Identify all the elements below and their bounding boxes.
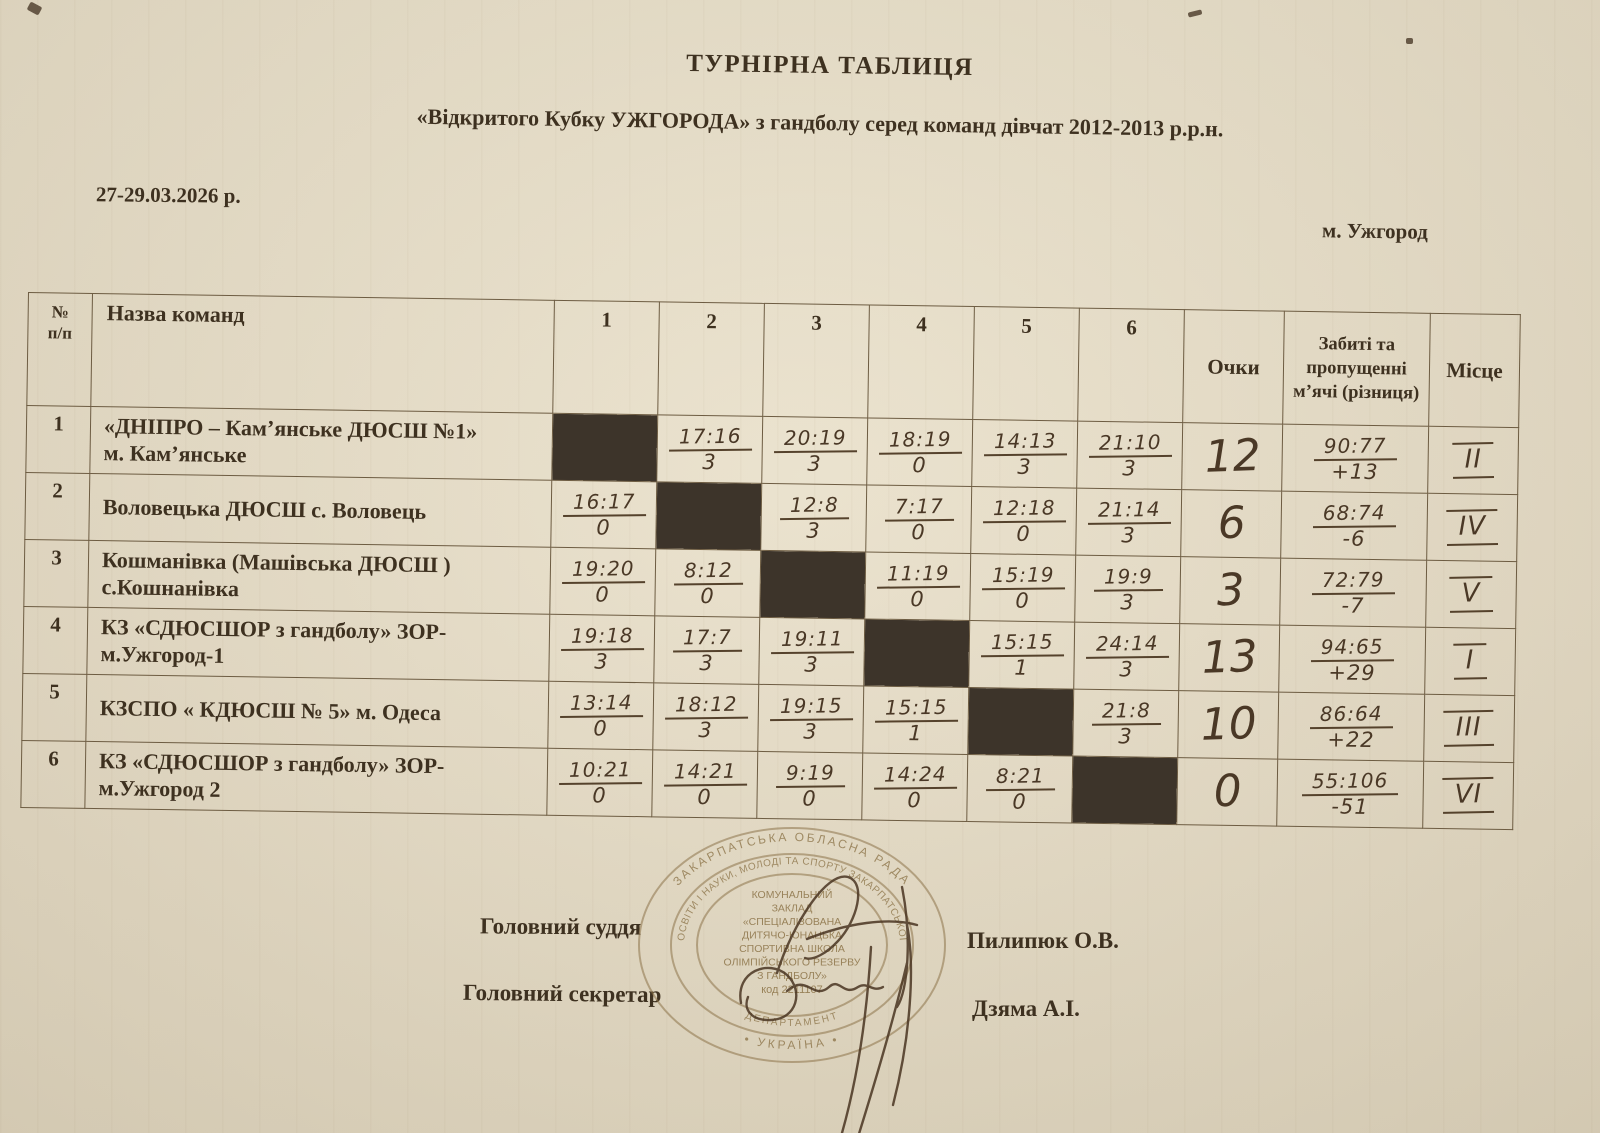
goal-difference: +22 xyxy=(1278,728,1423,753)
match-result-cell: 10:210 xyxy=(547,748,653,817)
team-name-cell: Кошманівка (Машівська ДЮСШ )с.Кошнанівка xyxy=(88,540,551,614)
points-value: 10 xyxy=(1199,703,1257,747)
team-name-cell: КЗ «СДЮСШОР з гандболу» ЗОР-м.Ужгород 2 xyxy=(85,741,548,815)
points-cell: 3 xyxy=(1180,557,1281,625)
match-result-cell: 18:123 xyxy=(653,683,759,752)
match-score: 15:15 xyxy=(980,629,1063,657)
match-points: 0 xyxy=(547,784,651,809)
row-number-cell: 6 xyxy=(21,740,86,808)
match-result-cell: 21:83 xyxy=(1073,689,1179,758)
goals-cell: 55:106-51 xyxy=(1277,759,1424,828)
header-round-6: 6 xyxy=(1078,308,1185,423)
goal-difference: -51 xyxy=(1277,795,1422,820)
row-number-cell: 2 xyxy=(25,472,90,540)
match-result-cell: 18:190 xyxy=(867,418,973,487)
diagonal-blackout-cell xyxy=(656,482,762,551)
match-points: 3 xyxy=(549,650,653,675)
points-cell: 13 xyxy=(1179,624,1280,692)
points-value: 12 xyxy=(1203,435,1261,479)
match-result-cell: 19:183 xyxy=(549,614,655,683)
match-result-cell: 19:93 xyxy=(1075,555,1181,624)
match-result-cell: 20:193 xyxy=(762,416,868,485)
points-value: 3 xyxy=(1215,569,1245,612)
goals-scored-conceded: 86:64 xyxy=(1310,701,1393,729)
match-result-cell: 13:140 xyxy=(548,681,654,750)
match-score: 15:15 xyxy=(874,695,957,723)
match-result-cell: 15:151 xyxy=(969,621,1075,690)
header-points: Очки xyxy=(1183,310,1285,424)
event-dates: 27-29.03.2026 р. xyxy=(96,182,241,209)
page-title: ТУРНІРНА ТАБЛИЦЯ xyxy=(60,41,1600,90)
match-points: 0 xyxy=(967,790,1071,815)
match-score: 12:8 xyxy=(779,492,848,520)
match-points: 1 xyxy=(863,721,967,746)
match-result-cell: 19:200 xyxy=(550,547,656,616)
match-result-cell: 17:163 xyxy=(657,415,763,484)
points-value: 6 xyxy=(1216,502,1246,545)
match-score: 20:19 xyxy=(773,425,856,453)
diagonal-blackout-cell xyxy=(760,550,866,619)
stamp-ring-text-inner-top: ОСВІТИ І НАУКИ, МОЛОДІ ТА СПОРТУ ЗАКАРПА… xyxy=(676,856,909,942)
place-cell: V xyxy=(1426,560,1517,628)
judge-signature xyxy=(777,877,917,1105)
place-value: III xyxy=(1444,710,1495,747)
goals-cell: 86:64+22 xyxy=(1278,692,1425,761)
match-points: 3 xyxy=(657,450,761,475)
stamp-ring-text-top: ЗАКАРПАТСЬКА ОБЛАСНА РАДА xyxy=(670,830,914,888)
scanned-document-page: ТУРНІРНА ТАБЛИЦЯ «Відкритого Кубку УЖГОР… xyxy=(0,0,1600,1133)
match-result-cell: 24:143 xyxy=(1074,622,1180,691)
header-round-4: 4 xyxy=(868,305,975,420)
header-place: Місце xyxy=(1429,313,1521,427)
goals-cell: 90:77+13 xyxy=(1282,424,1429,493)
goals-cell: 72:79-7 xyxy=(1280,558,1427,627)
team-name-line-2: м.Ужгород 2 xyxy=(98,775,546,808)
header-number: № п/п xyxy=(27,293,93,407)
goals-scored-conceded: 94:65 xyxy=(1311,634,1394,662)
match-points: 0 xyxy=(655,584,759,609)
match-result-cell: 16:170 xyxy=(551,480,657,549)
goal-difference: +29 xyxy=(1279,661,1424,686)
match-score: 21:10 xyxy=(1088,430,1171,458)
place-value: I xyxy=(1453,643,1486,680)
team-name-line-2: с.Кошнанівка xyxy=(101,574,549,607)
goals-scored-conceded: 55:106 xyxy=(1302,768,1399,796)
match-points: 3 xyxy=(653,718,757,743)
tournament-table: № п/п Назва команд 1 2 3 4 5 6 Очки Заби… xyxy=(20,292,1520,830)
match-points: 0 xyxy=(652,785,756,810)
match-result-cell: 8:120 xyxy=(655,549,761,618)
match-result-cell: 9:190 xyxy=(757,751,863,820)
svg-text:• УКРАЇНА •: • УКРАЇНА • xyxy=(743,1032,841,1052)
stamp-line: «СПЕЦІАЛІЗОВАНА xyxy=(743,916,841,928)
diagonal-blackout-cell xyxy=(968,687,1074,756)
stamp-line: ОЛІМПІЙСЬКОГО РЕЗЕРВУ xyxy=(724,956,861,969)
match-points: 0 xyxy=(551,516,655,541)
match-score: 19:9 xyxy=(1093,564,1162,592)
match-result-cell: 7:170 xyxy=(866,485,972,554)
svg-text:ЗАКАРПАТСЬКА ОБЛАСНА РАДА: ЗАКАРПАТСЬКА ОБЛАСНА РАДА xyxy=(670,830,914,888)
stamp-line: ДИТЯЧО-ЮНАЦЬКА xyxy=(742,930,842,942)
stamp-ring-text-inner-bottom: ДЕПАРТАМЕНТ xyxy=(744,1010,840,1029)
match-score: 15:19 xyxy=(981,562,1064,590)
match-points: 3 xyxy=(972,455,1076,480)
points-cell: 6 xyxy=(1181,490,1282,558)
place-cell: II xyxy=(1428,426,1519,494)
stamp-rings xyxy=(639,828,945,1062)
match-points: 0 xyxy=(548,717,652,742)
points-cell: 12 xyxy=(1182,423,1283,491)
points-value: 13 xyxy=(1200,636,1258,680)
match-score: 14:24 xyxy=(873,762,956,790)
secretary-name: Дзяма А.І. xyxy=(972,996,1080,1022)
match-points: 3 xyxy=(654,651,758,676)
place-value: VI xyxy=(1442,777,1494,814)
match-score: 17:7 xyxy=(672,625,741,653)
match-points: 0 xyxy=(970,589,1074,614)
points-cell: 10 xyxy=(1178,691,1279,759)
match-result-cell: 8:210 xyxy=(967,754,1073,823)
header-round-5: 5 xyxy=(973,307,1080,422)
page-subtitle: «Відкритого Кубку УЖГОРОДА» з гандболу с… xyxy=(40,98,1600,149)
diagonal-blackout-cell xyxy=(1072,756,1178,825)
match-points: 3 xyxy=(761,519,865,544)
event-city: м. Ужгород xyxy=(1322,218,1428,244)
match-score: 21:14 xyxy=(1087,497,1170,525)
place-cell: VI xyxy=(1423,761,1514,829)
secretary-signature xyxy=(740,947,907,1133)
tournament-table-wrapper: № п/п Назва команд 1 2 3 4 5 6 Очки Заби… xyxy=(20,292,1520,830)
points-cell: 0 xyxy=(1177,758,1278,826)
team-name-line-2: м. Кам’янське xyxy=(103,440,551,473)
goals-scored-conceded: 72:79 xyxy=(1312,567,1395,595)
match-score: 14:13 xyxy=(983,428,1066,456)
match-score: 7:17 xyxy=(884,494,953,522)
diagonal-blackout-cell xyxy=(552,413,658,482)
match-score: 9:19 xyxy=(775,760,844,788)
stamp-ring-text-bottom: • УКРАЇНА • xyxy=(743,1032,841,1052)
stamp-line: КОМУНАЛЬНИЙ xyxy=(752,888,833,901)
match-points: 3 xyxy=(759,653,863,678)
place-value: IV xyxy=(1446,509,1498,546)
match-result-cell: 17:73 xyxy=(654,616,760,685)
match-points: 0 xyxy=(550,583,654,608)
paper-speck xyxy=(27,1,43,15)
goal-difference: +13 xyxy=(1282,460,1427,485)
match-result-cell: 19:113 xyxy=(759,617,865,686)
judge-name: Пилипюк О.В. xyxy=(967,928,1119,954)
stamp-line: ЗАКЛАД xyxy=(772,903,813,915)
match-score: 17:16 xyxy=(668,424,751,452)
paper-speck xyxy=(1188,9,1203,17)
match-score: 19:15 xyxy=(769,693,852,721)
row-number-cell: 5 xyxy=(22,673,87,741)
match-points: 3 xyxy=(1075,591,1179,616)
match-points: 0 xyxy=(866,520,970,545)
place-cell: III xyxy=(1424,694,1515,762)
team-name-cell: КЗ «СДЮСШОР з гандболу» ЗОР-м.Ужгород-1 xyxy=(87,607,550,681)
team-name-line-1: Воловецька ДЮСШ с. Воловець xyxy=(103,494,551,527)
header-team-name: Назва команд xyxy=(91,293,555,413)
place-cell: IV xyxy=(1427,493,1518,561)
match-points: 3 xyxy=(1077,457,1181,482)
match-result-cell: 15:190 xyxy=(970,554,1076,623)
match-score: 19:11 xyxy=(770,626,853,654)
header-goals: Забиті та пропущенні м’ячі (різниця) xyxy=(1283,311,1431,426)
match-points: 0 xyxy=(867,453,971,478)
secretary-role-label: Головний секретар xyxy=(463,980,662,1008)
points-value: 0 xyxy=(1212,770,1242,813)
match-score: 24:14 xyxy=(1085,631,1168,659)
svg-text:ОСВІТИ І НАУКИ, МОЛОДІ ТА СПОР: ОСВІТИ І НАУКИ, МОЛОДІ ТА СПОРТУ ЗАКАРПА… xyxy=(676,856,909,942)
match-result-cell: 11:190 xyxy=(865,552,971,621)
paper-speck xyxy=(1406,38,1413,44)
match-score: 13:14 xyxy=(559,690,642,718)
match-score: 19:18 xyxy=(560,623,643,651)
match-points: 3 xyxy=(758,720,862,745)
match-score: 12:18 xyxy=(982,495,1065,523)
judge-role-label: Головний суддя xyxy=(480,913,641,940)
match-result-cell: 19:153 xyxy=(758,684,864,753)
goals-cell: 68:74-6 xyxy=(1281,491,1428,560)
team-name-line-2: м.Ужгород-1 xyxy=(100,641,548,674)
match-points: 3 xyxy=(1073,725,1177,750)
match-result-cell: 21:143 xyxy=(1076,488,1182,557)
match-points: 3 xyxy=(762,452,866,477)
goals-scored-conceded: 68:74 xyxy=(1313,500,1396,528)
match-result-cell: 14:133 xyxy=(972,420,1078,489)
match-result-cell: 14:240 xyxy=(862,753,968,822)
stamp-ring-texts: ЗАКАРПАТСЬКА ОБЛАСНА РАДА • УКРАЇНА • ОС… xyxy=(670,830,914,1052)
match-score: 11:19 xyxy=(876,561,959,589)
row-number-cell: 4 xyxy=(23,606,88,674)
svg-text:ДЕПАРТАМЕНТ: ДЕПАРТАМЕНТ xyxy=(744,1010,840,1029)
match-result-cell: 14:210 xyxy=(652,750,758,819)
match-result-cell: 12:83 xyxy=(761,483,867,552)
match-points: 0 xyxy=(971,522,1075,547)
table-header-row: № п/п Назва команд 1 2 3 4 5 6 Очки Заби… xyxy=(27,293,1521,428)
place-value: II xyxy=(1452,442,1494,479)
header-round-1: 1 xyxy=(553,300,660,415)
header-round-2: 2 xyxy=(658,302,765,417)
stamp-line: код 2211107 xyxy=(761,984,822,996)
match-score: 8:12 xyxy=(673,558,742,586)
row-number-cell: 1 xyxy=(26,405,91,473)
official-stamp: ЗАКАРПАТСЬКА ОБЛАСНА РАДА • УКРАЇНА • ОС… xyxy=(555,795,1045,1133)
match-points: 3 xyxy=(1076,524,1180,549)
match-score: 16:17 xyxy=(562,489,645,517)
goal-difference: -7 xyxy=(1280,594,1425,619)
place-cell: I xyxy=(1425,627,1516,695)
match-points: 3 xyxy=(1074,658,1178,683)
match-result-cell: 12:180 xyxy=(971,487,1077,556)
team-name-line-1: КЗСПО « КДЮСШ № 5» м. Одеса xyxy=(100,695,548,728)
match-score: 14:21 xyxy=(663,759,746,787)
place-value: V xyxy=(1449,576,1493,613)
goal-difference: -6 xyxy=(1281,527,1426,552)
match-points: 0 xyxy=(865,587,969,612)
match-score: 18:12 xyxy=(664,692,747,720)
match-score: 18:19 xyxy=(878,427,961,455)
team-name-cell: КЗСПО « КДЮСШ № 5» м. Одеса xyxy=(86,674,549,748)
match-score: 10:21 xyxy=(558,757,641,785)
team-name-cell: Воловецька ДЮСШ с. Воловець xyxy=(89,473,552,547)
goals-scored-conceded: 90:77 xyxy=(1314,433,1397,461)
goals-cell: 94:65+29 xyxy=(1279,625,1426,694)
match-points: 0 xyxy=(862,788,966,813)
match-points: 0 xyxy=(757,787,861,812)
stamp-line: З ГАНДБОЛУ» xyxy=(757,970,827,982)
match-result-cell: 21:103 xyxy=(1077,421,1183,490)
stamp-line: СПОРТИВНА ШКОЛА xyxy=(739,943,845,955)
header-round-3: 3 xyxy=(763,303,870,418)
match-result-cell: 15:151 xyxy=(863,686,969,755)
match-score: 21:8 xyxy=(1091,698,1160,726)
match-score: 19:20 xyxy=(561,556,644,584)
table-body: 1«ДНІПРО – Кам’янське ДЮСШ №1»м. Кам’янс… xyxy=(21,405,1519,829)
diagonal-blackout-cell xyxy=(864,619,970,688)
stamp-center-text: КОМУНАЛЬНИЙ ЗАКЛАД «СПЕЦІАЛІЗОВАНА ДИТЯЧ… xyxy=(724,888,861,996)
match-points: 1 xyxy=(969,656,1073,681)
team-name-cell: «ДНІПРО – Кам’янське ДЮСШ №1»м. Кам’янсь… xyxy=(90,406,553,480)
match-score: 8:21 xyxy=(985,763,1054,791)
row-number-cell: 3 xyxy=(24,539,89,607)
